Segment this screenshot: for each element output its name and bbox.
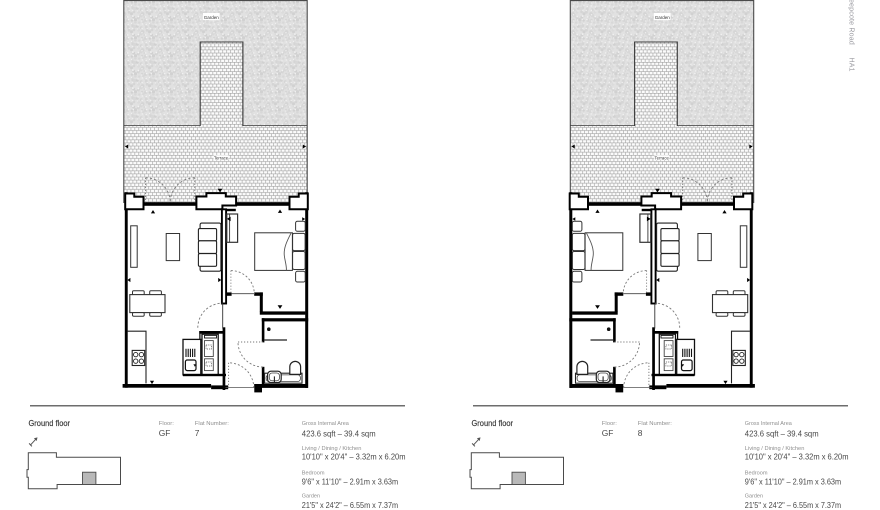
svg-text:Floor:: Floor: bbox=[159, 421, 174, 427]
svg-text:Flat Number:: Flat Number: bbox=[195, 421, 229, 427]
svg-text:GF: GF bbox=[602, 428, 614, 438]
svg-text:GF: GF bbox=[159, 428, 171, 438]
svg-text:Garden: Garden bbox=[302, 494, 320, 500]
svg-text:Ground floor: Ground floor bbox=[29, 418, 71, 428]
svg-text:9'6" x 11'10" – 2.91m x 3.63m: 9'6" x 11'10" – 2.91m x 3.63m bbox=[302, 477, 398, 486]
svg-text:Terrace: Terrace bbox=[214, 156, 229, 161]
svg-text:Gross Internal Area: Gross Internal Area bbox=[745, 421, 793, 427]
svg-text:9'6" x 11'10" – 2.91m x 3.63m: 9'6" x 11'10" – 2.91m x 3.63m bbox=[745, 477, 841, 486]
svg-text:Terrace: Terrace bbox=[655, 156, 670, 161]
svg-text:Floor:: Floor: bbox=[602, 421, 617, 427]
svg-text:8: 8 bbox=[638, 428, 643, 438]
svg-text:Sheepcote Road: Sheepcote Road bbox=[847, 0, 854, 45]
svg-text:Living / Dining / Kitchen: Living / Dining / Kitchen bbox=[302, 446, 362, 452]
svg-text:Bedroom: Bedroom bbox=[302, 471, 325, 477]
svg-text:423.6 sqft – 39.4 sqm: 423.6 sqft – 39.4 sqm bbox=[302, 430, 376, 439]
svg-text:7: 7 bbox=[195, 428, 200, 438]
svg-text:Bedroom: Bedroom bbox=[745, 471, 768, 477]
svg-text:Garden: Garden bbox=[655, 15, 671, 20]
svg-text:Garden: Garden bbox=[745, 494, 763, 500]
svg-text:10'10" x 20'4" – 3.32m x 6.20m: 10'10" x 20'4" – 3.32m x 6.20m bbox=[302, 452, 406, 461]
svg-text:21'5" x 24'2" – 6.55m x 7.37m: 21'5" x 24'2" – 6.55m x 7.37m bbox=[302, 501, 398, 510]
svg-text:Living / Dining / Kitchen: Living / Dining / Kitchen bbox=[745, 446, 805, 452]
svg-text:423.6 sqft – 39.4 sqm: 423.6 sqft – 39.4 sqm bbox=[745, 430, 819, 439]
svg-text:Flat Number:: Flat Number: bbox=[638, 421, 672, 427]
svg-text:10'10" x 20'4" – 3.32m x 6.20m: 10'10" x 20'4" – 3.32m x 6.20m bbox=[745, 452, 849, 461]
svg-text:Gross Internal Area: Gross Internal Area bbox=[302, 421, 350, 427]
svg-text:21'5" x 24'2" – 6.55m x 7.37m: 21'5" x 24'2" – 6.55m x 7.37m bbox=[745, 501, 841, 510]
svg-text:Ground floor: Ground floor bbox=[472, 418, 514, 428]
svg-text:HA1: HA1 bbox=[847, 58, 854, 72]
svg-text:Garden: Garden bbox=[204, 15, 220, 20]
